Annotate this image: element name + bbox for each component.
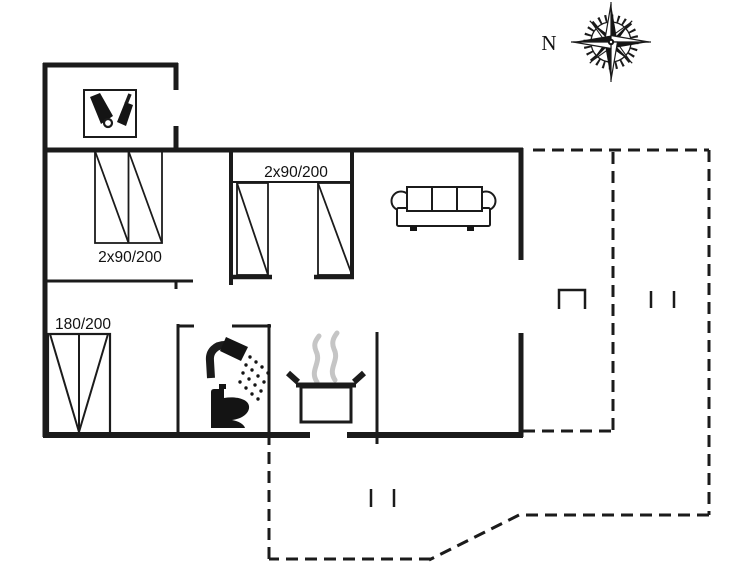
utility-ring-shape <box>104 119 112 127</box>
bed-diagonal <box>237 183 268 275</box>
north-label: N <box>541 31 556 55</box>
sofa-cushion <box>407 187 432 211</box>
bed-size-label: 2x90/200 <box>264 164 328 181</box>
bedroom-middle-beds: 2x90/200 <box>231 164 354 277</box>
steam-icon <box>332 333 337 380</box>
bed-diagonal <box>95 151 129 243</box>
bed-size-label: 180/200 <box>55 316 111 333</box>
terrace-diagonal-edge <box>429 515 519 560</box>
bed-diagonal <box>50 334 79 432</box>
shower-head <box>220 337 248 361</box>
floor-plan: 2x90/200 2x90/200 180/200 <box>0 0 755 566</box>
bed-size-label: 2x90/200 <box>98 249 162 266</box>
sofa-cushion <box>432 187 457 211</box>
shower-spray-droplets <box>238 355 269 400</box>
compass-rose-icon: N <box>541 0 653 84</box>
utility-icon <box>84 90 136 137</box>
sofa-leg <box>467 226 474 231</box>
pot-handle-right <box>354 373 364 382</box>
steam-icon <box>314 336 319 382</box>
pot-handle-left <box>288 373 298 382</box>
compass-center-hole <box>610 41 612 43</box>
toilet-icon <box>211 384 249 428</box>
bed-diagonal <box>318 183 352 275</box>
bathroom-fixtures <box>210 337 270 428</box>
sofa-cushion <box>457 187 482 211</box>
bed-diagonal <box>129 151 163 243</box>
terrace-marker-icon <box>559 290 585 309</box>
sofa-leg <box>410 226 417 231</box>
bedroom-top-left-beds: 2x90/200 <box>95 151 162 266</box>
kitchen-cooking-area <box>288 333 364 422</box>
floor-plan-canvas: 2x90/200 2x90/200 180/200 <box>0 0 755 566</box>
bed-diagonal <box>79 334 108 432</box>
bedroom-bottom-left-bed: 180/200 <box>48 316 111 434</box>
sofa-icon <box>392 187 496 231</box>
cooking-pot-icon <box>301 387 351 422</box>
